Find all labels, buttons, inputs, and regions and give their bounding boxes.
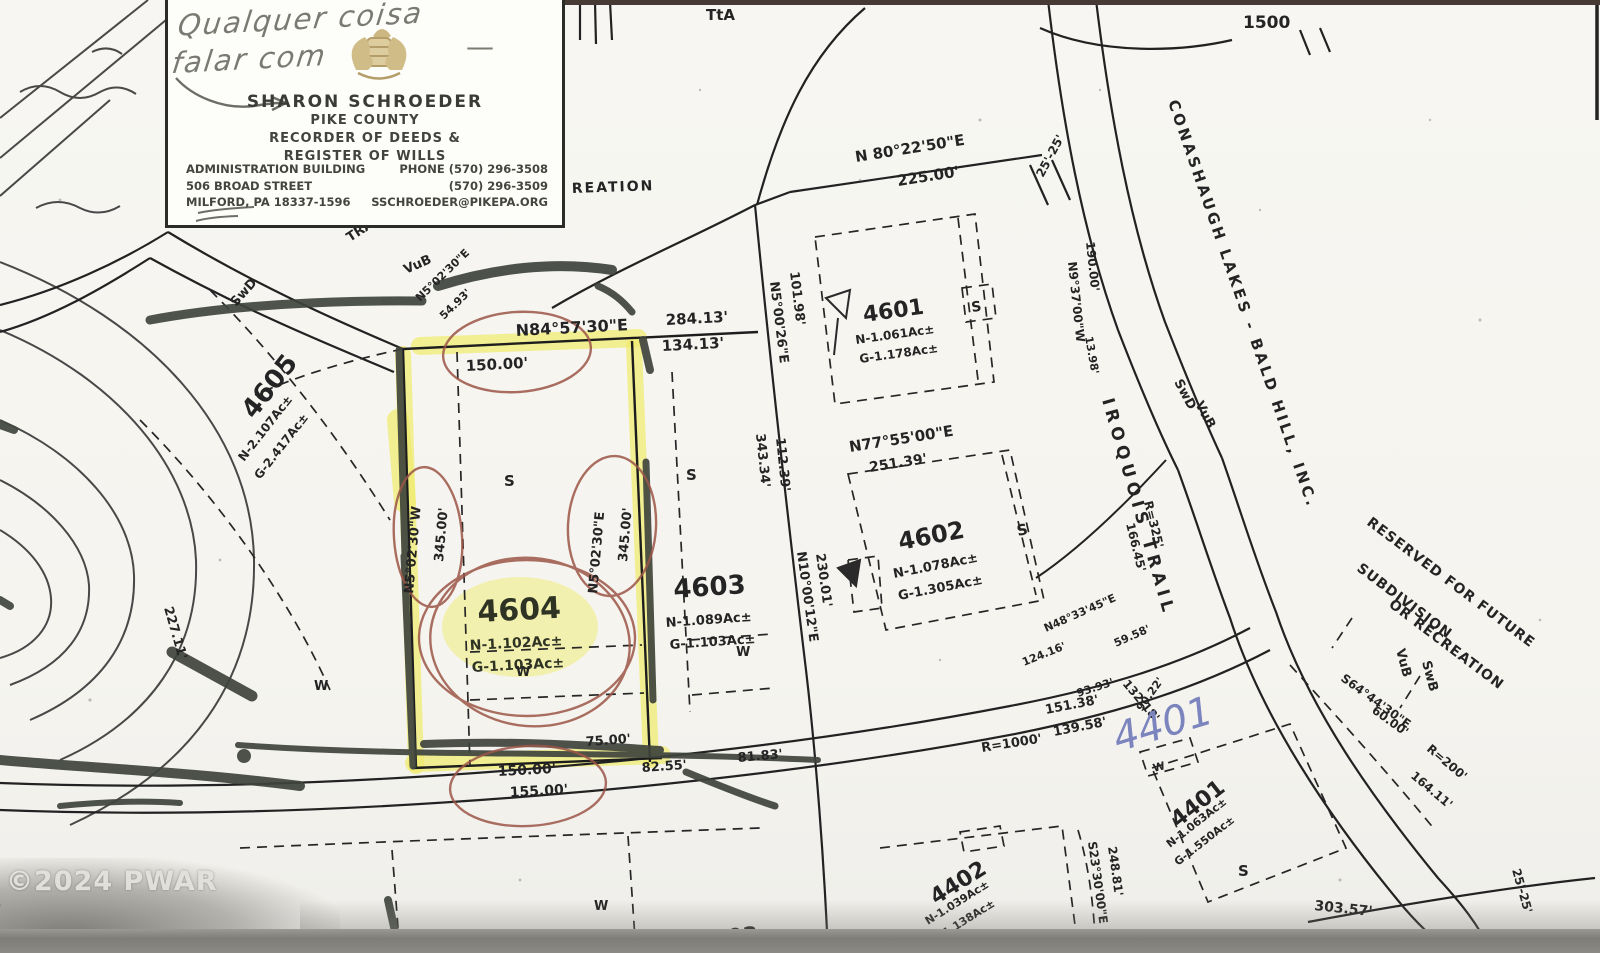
tick-60-a [1332,618,1352,648]
card-phone2: (570) 296-3509 [371,178,548,195]
soil-label-swb-right: SwB [1418,659,1441,693]
lot-4604-number: 4604 [477,591,562,630]
recorder-business-card: Qualquer coisa — falar com [165,0,565,228]
dist-155: 155.00' [509,782,568,801]
dist-81: 81.83' [737,747,783,766]
contour-1500-line [1040,28,1232,49]
road-tra-a [168,232,403,349]
radius-1000: R=1000' [980,732,1043,756]
dist-225: 225.00' [896,162,961,190]
septic-marker: S [504,472,515,490]
curve-top-center [757,8,865,205]
pennant-4601 [826,290,850,318]
dist-75: 75.00' [585,732,631,750]
label-conashaugh: CONASHAUGH LAKES - BALD HILL, INC. [1164,97,1321,510]
card-email: SSCHROEDER@PIKEPA.ORG [371,194,548,211]
envelope-4604-bottom [470,693,644,700]
septic-marker: S [686,466,697,484]
scanned-plat-map-page: 1500 TtA REATION TRA VuB SwD N 80°22'50"… [0,0,1600,953]
dist-54: 54.93' [437,286,473,322]
card-address-block: ADMINISTRATION BUILDING 506 BROAD STREET… [186,161,365,211]
dist-190: 190.00' [1083,241,1102,292]
lot-4402-box [960,826,1004,852]
soil-label-vub-left: VuB [402,252,434,277]
soil-label-tta: TtA [706,6,735,24]
bearing-n77: N77°55'00"E [848,422,955,456]
septic-marker: S [1238,862,1249,880]
pennsylvania-crest [352,29,407,79]
lot-4602-number: 4602 [896,516,967,556]
road-label-iroquois-trail: IROQUOIS TRAIL [1097,396,1179,619]
road-tra-c [0,232,168,305]
tick-60-b [1400,676,1420,708]
dist-82: 82.55' [641,758,687,776]
dist-343: 343.34' [752,433,773,488]
tick-sigma-2 [595,2,596,44]
bearing-n48: N48°33'45"E [1042,591,1118,634]
pennant-4602 [838,560,860,586]
dist-59: 59.58' [1112,622,1152,649]
lot-4603-left [672,372,690,712]
lot-4603-number: 4603 [672,570,746,605]
lot-4603-net: N-1.089Ac± [665,610,752,631]
card-address-line2: 506 BROAD STREET [186,178,365,195]
dist-13: 13.98' [1082,335,1101,375]
card-contact-block: PHONE (570) 296-3508 (570) 296-3509 SSCH… [371,161,548,211]
dist-284: 284.13' [665,308,728,329]
tick-sigma-3 [610,2,612,40]
handwritten-lot-4401: 4401 [1107,688,1218,762]
road-iroquois-trail-a [1178,470,1454,953]
scan-top-edge [552,0,1600,5]
card-address-line1: ADMINISTRATION BUILDING [186,161,365,178]
soil-label-vub-right: VuB [1191,399,1218,431]
lots-below-road [240,828,760,848]
label-reation: REATION [572,178,655,197]
well-marker: W [736,645,750,660]
dist-124: 124.16' [1020,640,1067,669]
dist-248: 248.81' [1105,845,1126,896]
dist-101: 101.98' [786,271,807,327]
dist-134: 134.13' [661,334,724,355]
bearing-right-4604: N5°02'30"E [586,511,608,594]
tick-1500-a [1300,30,1310,55]
dist-150-bottom: 150.00' [497,761,556,780]
watermark-pwar: ©2024 PWAR [6,866,218,897]
road-top-right-b [1096,0,1222,458]
boundary-curve-recreation [552,205,755,308]
contour-label-1500: 1500 [1243,13,1290,33]
tick-25-b [1052,160,1070,200]
card-address-line3: MILFORD, PA 18337-1596 [186,194,365,211]
bearing-n9: N9°37'00"W [1065,261,1087,343]
septic-marker: S [970,299,982,316]
well-marker: W [516,665,530,680]
dist-112: 112.39' [772,437,793,492]
dist-345-left: 345.00' [432,507,452,562]
card-county: PIKE COUNTY [168,113,562,128]
dist-150-top: 150.00' [465,354,528,375]
pennant-4601-pole [834,318,838,355]
envelope-4603-bottom [692,688,774,695]
dist-251: 251.39' [868,451,928,476]
radius-200: R=200' [1424,742,1470,784]
dist-345-right: 345.00' [616,507,636,562]
scan-bottom-band [0,929,1600,953]
lot-4601-number: 4601 [861,295,925,328]
soil-label-vub-right2: VuB [1392,647,1414,679]
block-4604-survey-lines [403,332,758,768]
bearing-n80: N 80°22'50"E [854,131,966,166]
card-name: SHARON SCHROEDER [168,92,562,112]
tick-1500-b [1320,28,1330,52]
well-marker: W [314,679,328,694]
crest-scroll [358,73,400,79]
road-tra-d [0,258,150,332]
card-role-line1: RECORDER OF DEEDS & [168,131,562,146]
card-phone1: PHONE (570) 296-3508 [371,161,548,178]
well-marker: W [1151,759,1166,775]
road-iroquois-trail-b [1222,458,1492,953]
